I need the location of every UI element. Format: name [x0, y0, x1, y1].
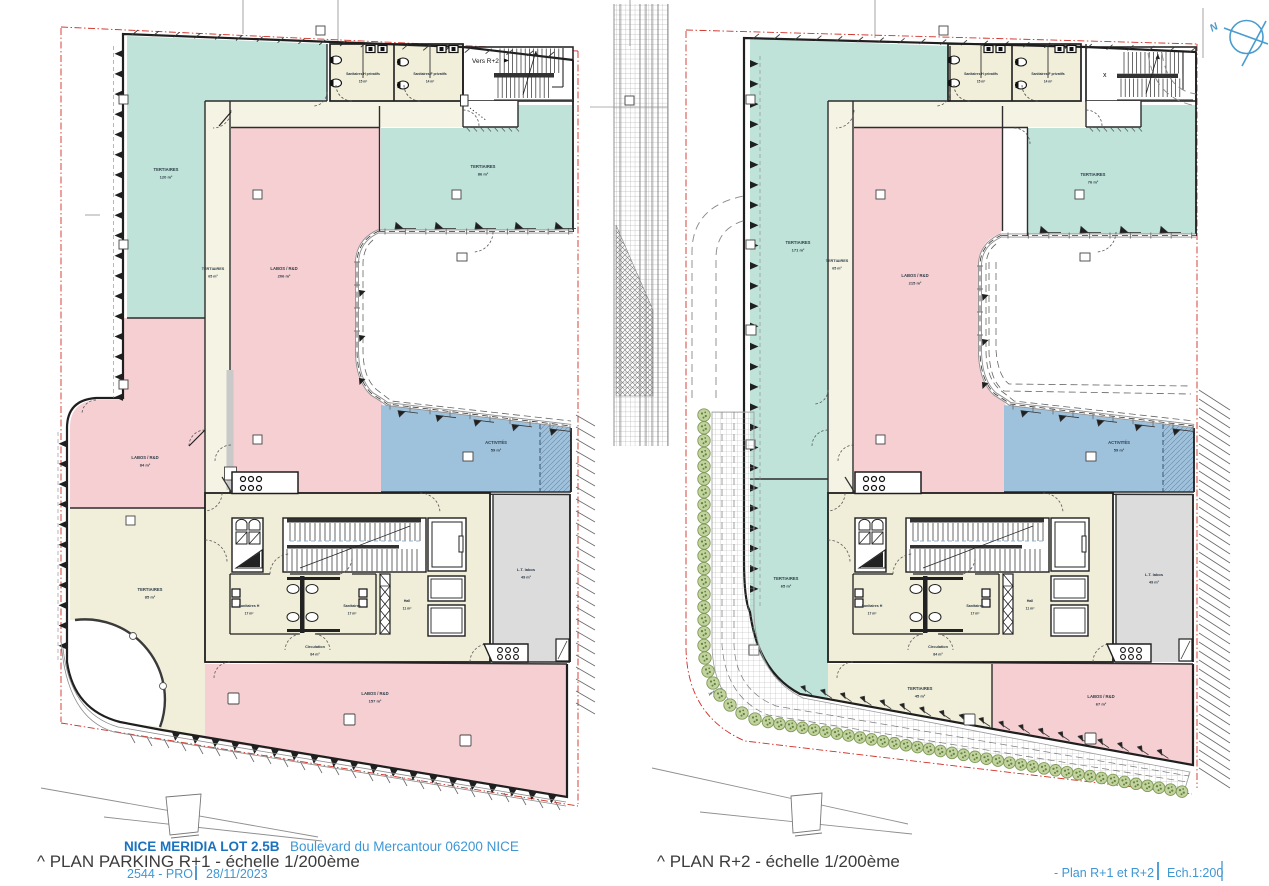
svg-text:Sanitaires: Sanitaires: [343, 604, 360, 608]
svg-text:LABOS / R&D: LABOS / R&D: [361, 691, 388, 696]
svg-text:Hall: Hall: [404, 599, 411, 603]
svg-text:TERTIAIRES: TERTIAIRES: [154, 167, 179, 172]
svg-text:14 m²: 14 m²: [426, 80, 434, 84]
svg-text:L.T. labos: L.T. labos: [1145, 572, 1164, 577]
svg-text:65 m²: 65 m²: [832, 267, 842, 271]
svg-text:85 m²: 85 m²: [145, 595, 156, 600]
svg-text:15 m²: 15 m²: [359, 80, 367, 84]
svg-text:Sanitaires H privatifs: Sanitaires H privatifs: [964, 72, 998, 76]
svg-text:67 m²: 67 m²: [1096, 702, 1107, 707]
svg-text:TERTIAIRES: TERTIAIRES: [908, 686, 933, 691]
svg-text:Sanitaires F privatifs: Sanitaires F privatifs: [1031, 72, 1064, 76]
svg-text:Ech.1:200: Ech.1:200: [1167, 866, 1223, 880]
svg-text:Hall: Hall: [1027, 599, 1034, 603]
svg-text:LABOS / R&D: LABOS / R&D: [270, 266, 297, 271]
svg-text:Sanitaires: Sanitaires: [966, 604, 983, 608]
svg-text:49 m²: 49 m²: [1149, 581, 1160, 585]
svg-text:LABOS / R&D: LABOS / R&D: [1087, 694, 1114, 699]
svg-text:15 m²: 15 m²: [977, 80, 985, 84]
svg-text:Sanitaires H privatifs: Sanitaires H privatifs: [346, 72, 380, 76]
svg-text:84 m²: 84 m²: [310, 653, 320, 657]
svg-text:215 m²: 215 m²: [909, 281, 922, 286]
svg-text:65 m²: 65 m²: [781, 584, 792, 589]
svg-text:11 m²: 11 m²: [403, 607, 413, 611]
svg-text:17 m²: 17 m²: [348, 612, 358, 616]
svg-text:45 m²: 45 m²: [915, 694, 926, 699]
svg-text:LABOS / R&D: LABOS / R&D: [131, 455, 158, 460]
svg-text:17 m²: 17 m²: [868, 612, 878, 616]
svg-text:TERTIAIRES: TERTIAIRES: [774, 576, 799, 581]
svg-text:TERTIAIRES: TERTIAIRES: [471, 164, 496, 169]
svg-text:86 m²: 86 m²: [478, 172, 489, 177]
svg-text:120 m²: 120 m²: [160, 175, 173, 180]
svg-text:TERTIAIRES: TERTIAIRES: [786, 240, 811, 245]
svg-text:TERTIAIRES: TERTIAIRES: [202, 267, 225, 271]
svg-text:^ PLAN R+2 - échelle 1/200ème: ^ PLAN R+2 - échelle 1/200ème: [657, 852, 900, 871]
svg-text:x: x: [1103, 72, 1107, 79]
svg-text:59 m²: 59 m²: [1114, 448, 1125, 453]
svg-text:11 m²: 11 m²: [1026, 607, 1036, 611]
svg-text:76 m²: 76 m²: [1088, 180, 1099, 185]
svg-text:65 m²: 65 m²: [208, 275, 218, 279]
svg-text:TERTIAIRES: TERTIAIRES: [138, 587, 163, 592]
svg-text:^ PLAN PARKING R+1 - échelle 1: ^ PLAN PARKING R+1 - échelle 1/200ème: [37, 852, 360, 871]
svg-text:TERTIAIRES: TERTIAIRES: [826, 259, 849, 263]
svg-text:84 m²: 84 m²: [933, 653, 943, 657]
svg-text:Sanitaires H: Sanitaires H: [862, 604, 883, 608]
svg-text:157 m²: 157 m²: [369, 699, 382, 704]
svg-text:2544 - PRO: 2544 - PRO: [127, 867, 193, 881]
svg-text:Vers R+2: Vers R+2: [472, 58, 499, 65]
svg-text:Sanitaires H: Sanitaires H: [239, 604, 260, 608]
svg-text:Circulation: Circulation: [305, 645, 326, 649]
svg-text:ACTIVITÉS: ACTIVITÉS: [485, 440, 507, 445]
svg-text:L.T. labos: L.T. labos: [517, 567, 536, 572]
svg-text:84 m²: 84 m²: [140, 463, 151, 468]
svg-text:N: N: [1208, 20, 1221, 34]
svg-text:28/11/2023: 28/11/2023: [206, 867, 268, 881]
svg-text:49 m²: 49 m²: [521, 576, 532, 580]
svg-text:171 m²: 171 m²: [792, 248, 805, 253]
svg-text:Sanitaires F privatifs: Sanitaires F privatifs: [413, 72, 446, 76]
svg-text:LABOS / R&D: LABOS / R&D: [901, 273, 928, 278]
svg-text:14 m²: 14 m²: [1044, 80, 1052, 84]
svg-text:17 m²: 17 m²: [971, 612, 981, 616]
svg-text:206 m²: 206 m²: [278, 274, 291, 279]
svg-text:ACTIVITÉS: ACTIVITÉS: [1108, 440, 1130, 445]
svg-text:59 m²: 59 m²: [491, 448, 502, 453]
svg-text:TERTIAIRES: TERTIAIRES: [1081, 172, 1106, 177]
svg-text:Circulation: Circulation: [928, 645, 949, 649]
svg-text:17 m²: 17 m²: [245, 612, 255, 616]
svg-text:- Plan R+1 et R+2: - Plan R+1 et R+2: [1054, 866, 1154, 880]
